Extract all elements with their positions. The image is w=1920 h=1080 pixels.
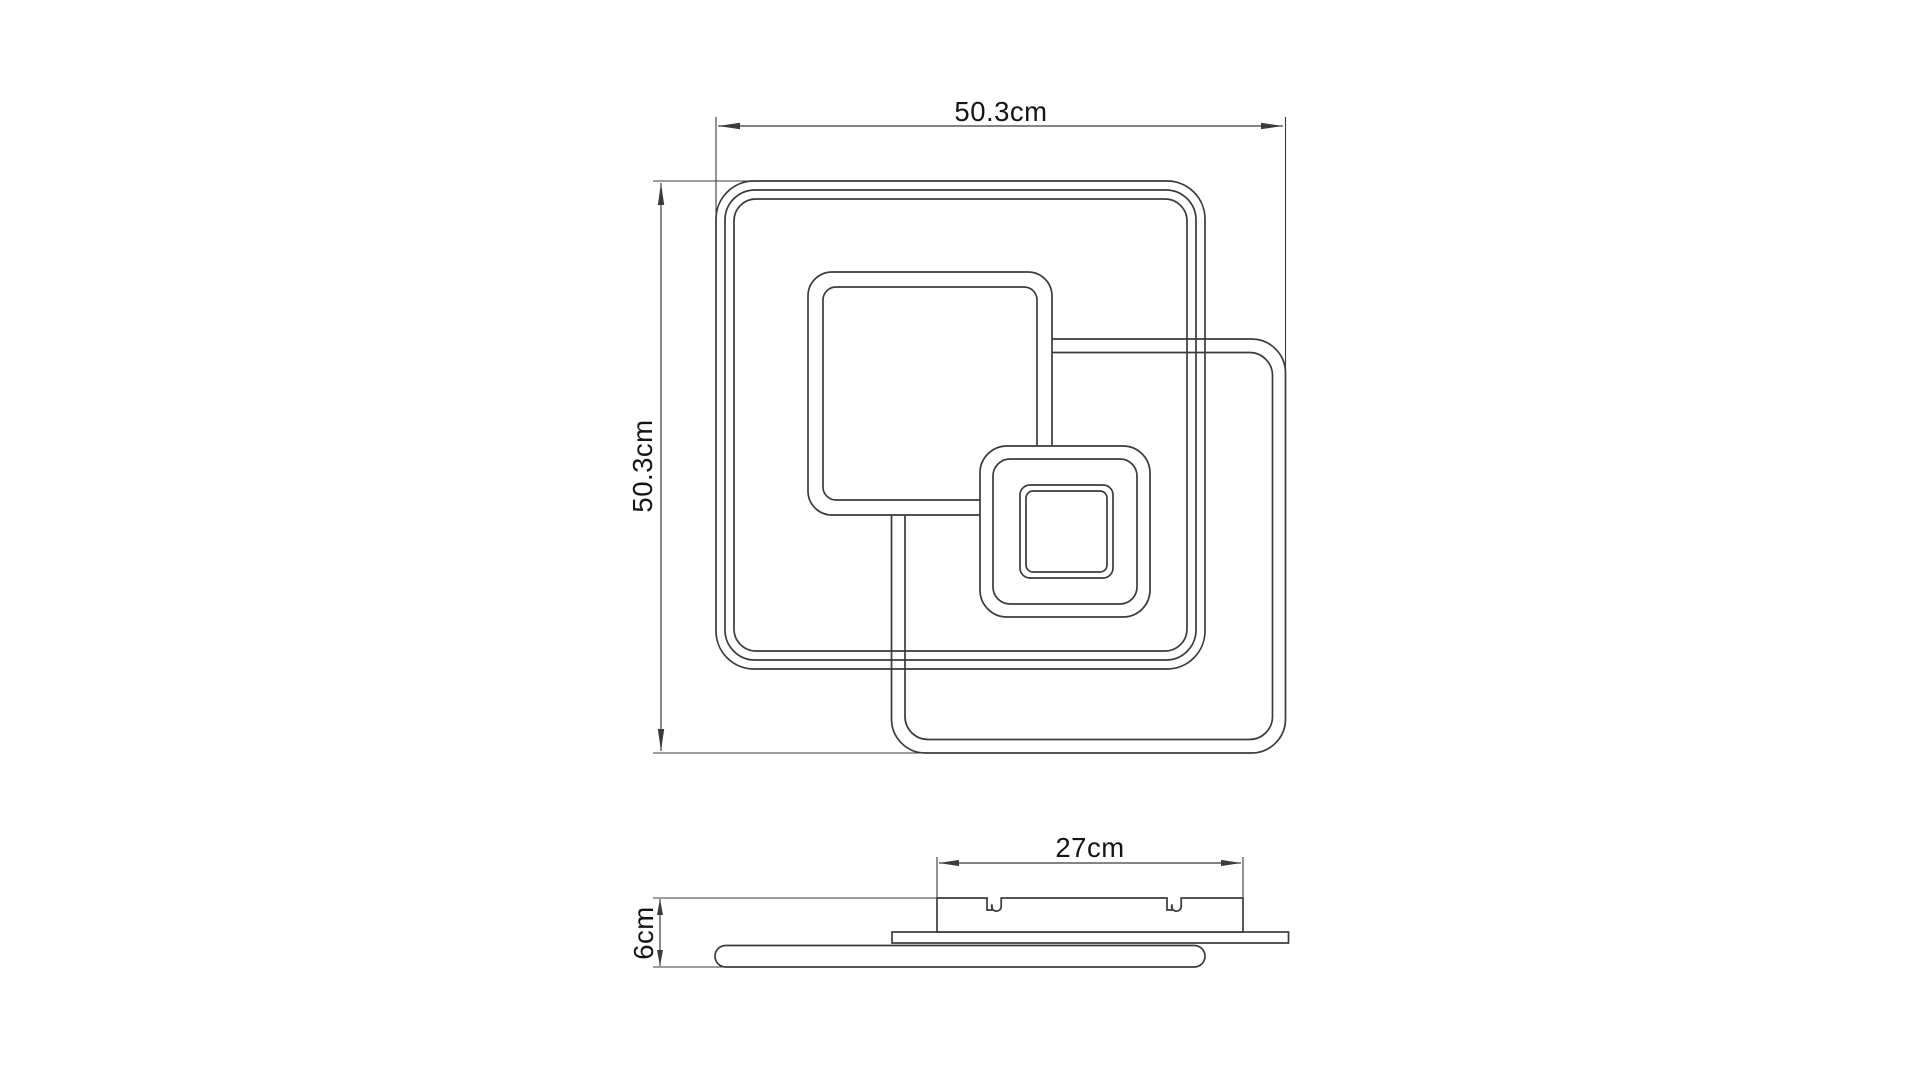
technical-drawing-page: 50.3cm 50.3cm 27cm: [0, 0, 1920, 1080]
dim-label-top-width: 50.3cm: [954, 96, 1047, 127]
small-square-frame-outer: [980, 446, 1150, 617]
mounting-canopy-profile: [937, 898, 1243, 932]
dim-label-side-width: 27cm: [1055, 832, 1124, 863]
dim-label-top-height: 50.3cm: [627, 419, 658, 512]
dim-label-side-height: 6cm: [628, 906, 659, 959]
light-panel-profile: [715, 946, 1205, 968]
fixture-dimensional-drawing: 50.3cm 50.3cm 27cm: [0, 0, 1920, 1080]
mounting-plate-profile: [892, 932, 1289, 943]
